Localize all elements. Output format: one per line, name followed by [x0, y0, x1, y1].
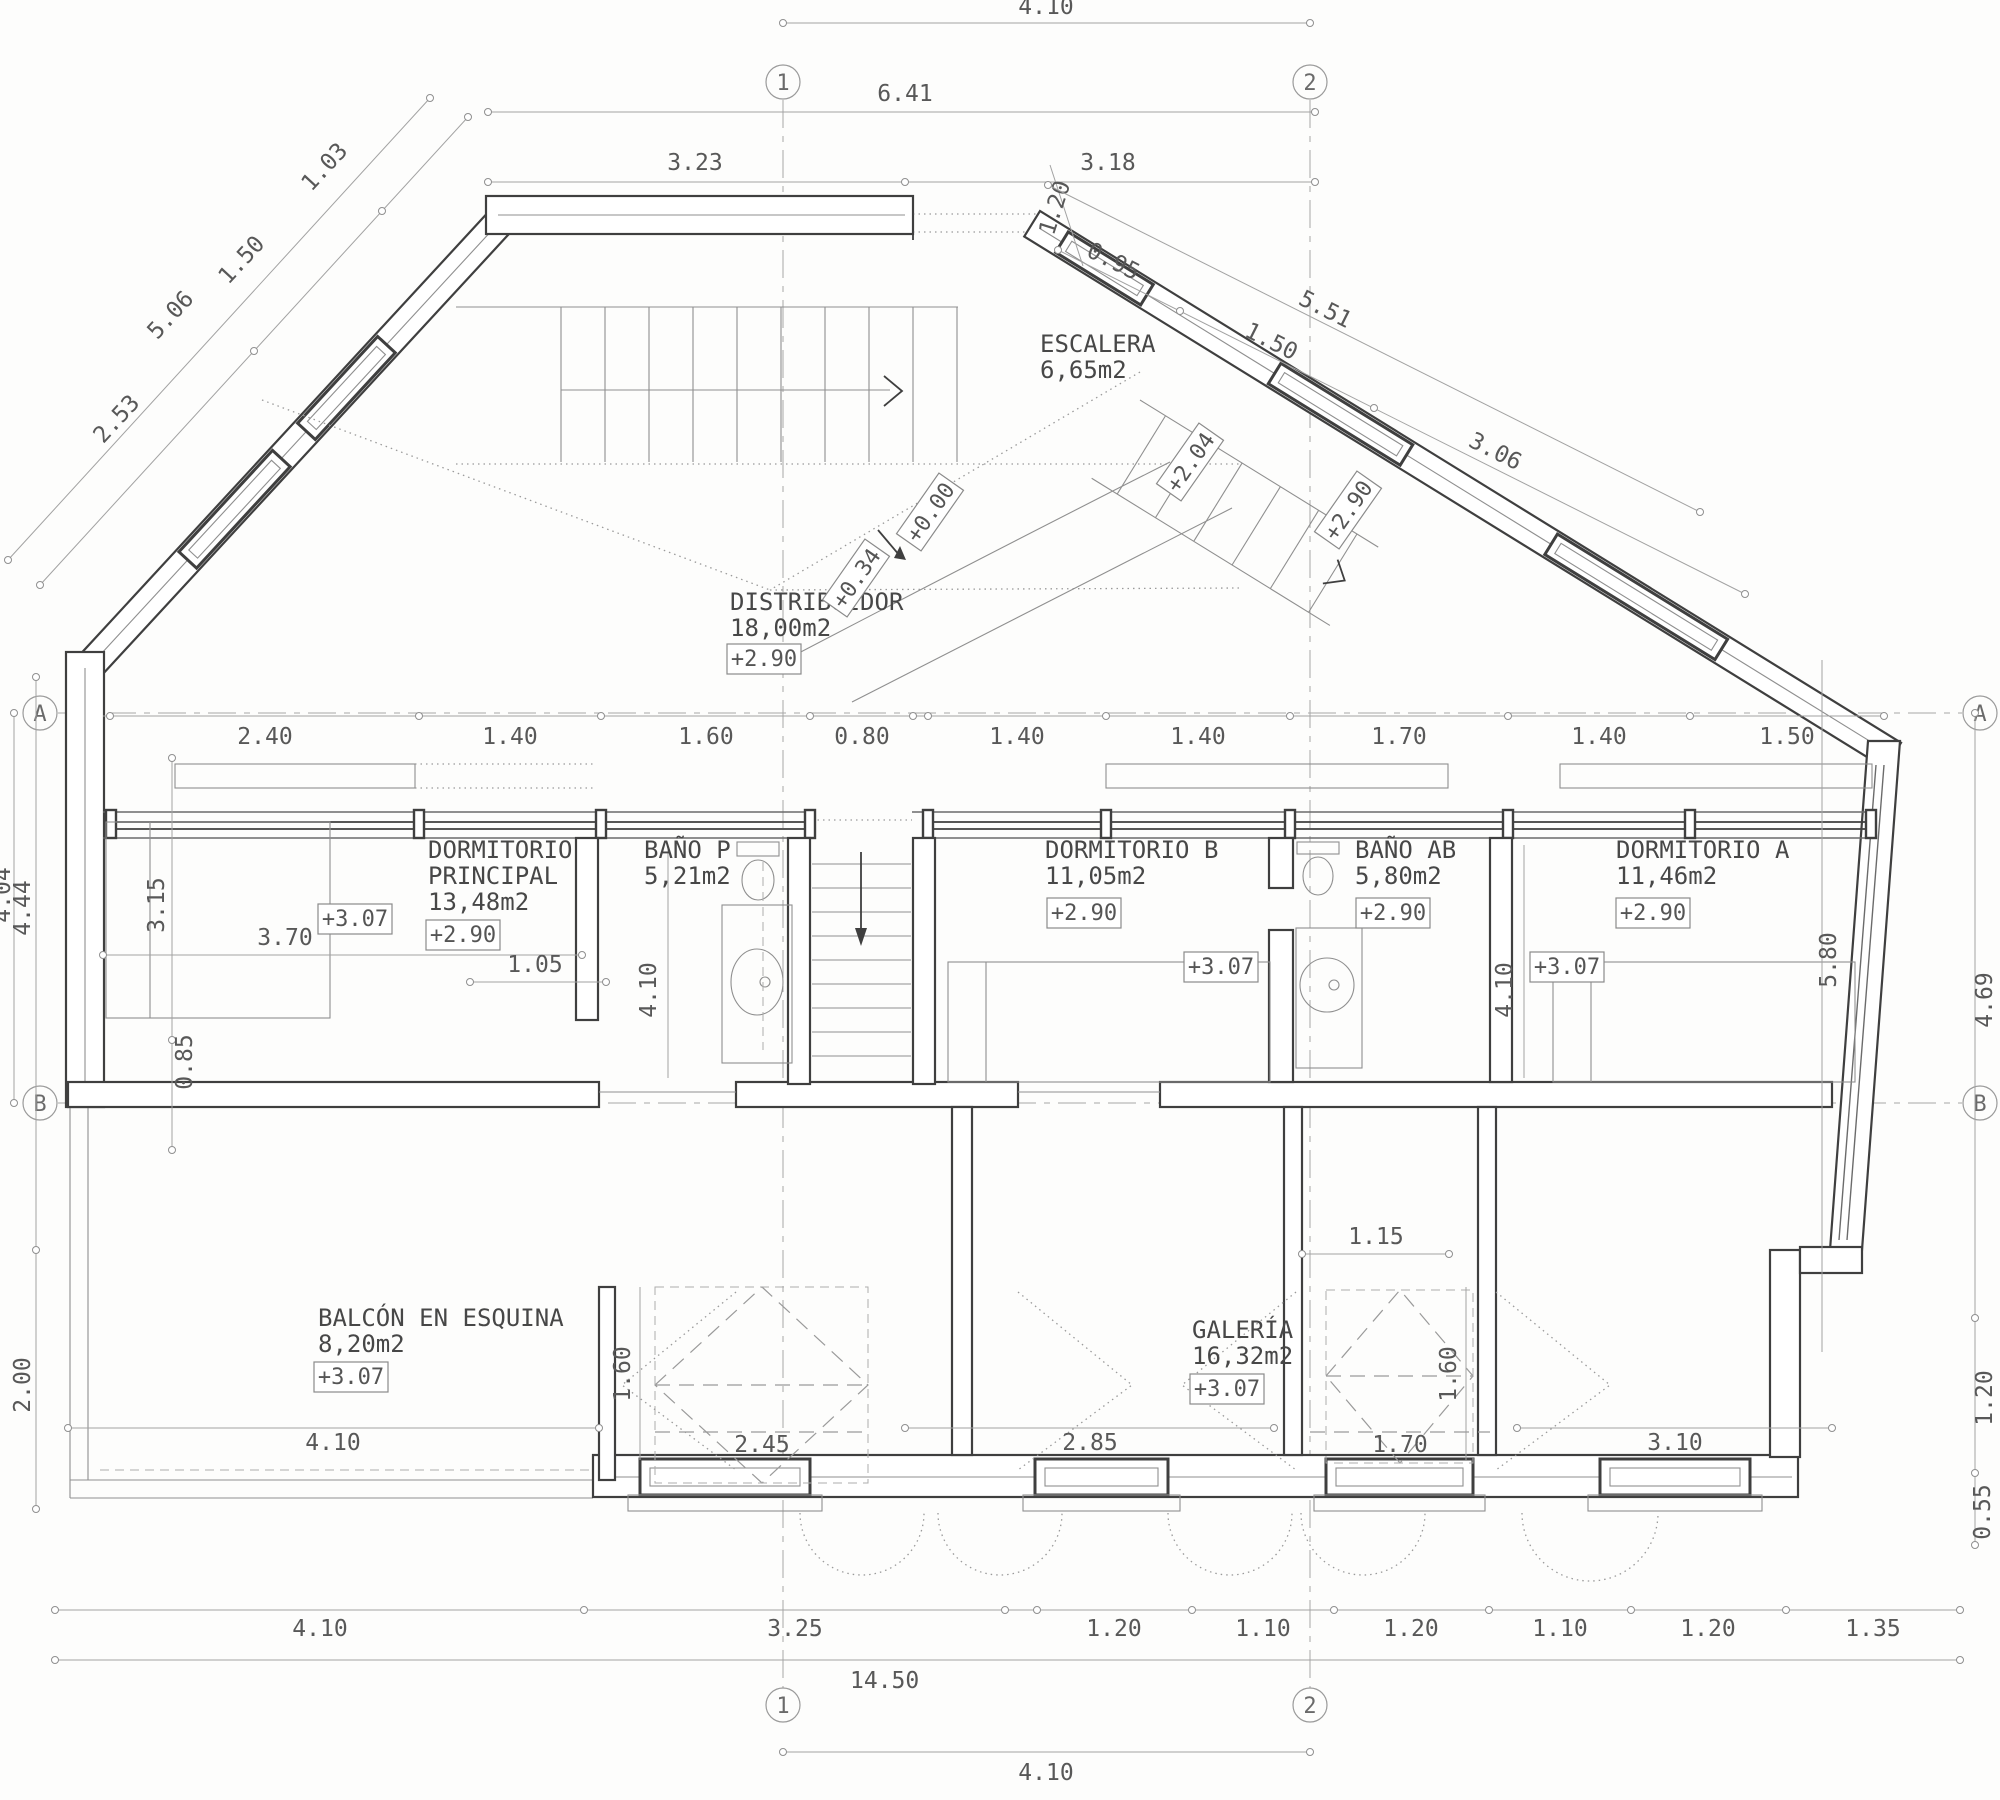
- wall-south-3: [1160, 1082, 1832, 1107]
- dim-rowA-8: 1.50: [1759, 724, 1814, 750]
- level-box-dorm-b: +2.90: [1047, 898, 1121, 928]
- wall-south-2: [736, 1082, 1018, 1107]
- window-bottom-3: [1326, 1459, 1473, 1495]
- label-distribuidor-area: 18,00m2: [730, 614, 831, 642]
- toilet-tank-banoab: [1297, 842, 1339, 854]
- dim-dorma-east: 5.80: [1816, 932, 1842, 987]
- shelf-dorm-a: [1560, 764, 1872, 788]
- counter-banoab: [1296, 928, 1362, 1068]
- dim-rowA-4: 1.40: [989, 724, 1044, 750]
- column-gallery-2: [1284, 1107, 1302, 1455]
- window-bottom-2: [1035, 1459, 1168, 1495]
- dimensions: 4.10 6.41 3.23 3.18 5.06 2.53 1.50 1.03 …: [0, 0, 1998, 1786]
- shelf-principal: [175, 764, 415, 788]
- dim-bot-6: 1.20: [1680, 1616, 1735, 1642]
- dim-diag-left-seg2: 1.50: [214, 231, 271, 289]
- window-diagonal-left-2: [298, 336, 396, 439]
- dim-banop-depth: 4.10: [636, 962, 662, 1017]
- label-distribuidor: DISTRIBUIDOR: [730, 588, 904, 616]
- level-box-dorm-principal: +2.90: [426, 920, 500, 950]
- dim-left-balcony: 2.00: [10, 1357, 36, 1412]
- label-escalera-area: 6,65m2: [1040, 356, 1127, 384]
- label-galeria: GALERÍA: [1192, 1315, 1294, 1344]
- dim-left-inner: 1.05: [507, 952, 562, 978]
- wall-banoab-east: [1490, 838, 1512, 1082]
- floor-level-box-dorm-b: +3.07: [1184, 952, 1258, 982]
- dim-int-1: 2.45: [734, 1432, 789, 1458]
- grid-label-B-left: B: [33, 1092, 46, 1117]
- label-dorm-a: DORMITORIO A: [1616, 836, 1790, 864]
- dim-bot-4: 1.20: [1383, 1616, 1438, 1642]
- dim-right-upper: 4.69: [1972, 972, 1998, 1027]
- wall-step-right: [1800, 1247, 1862, 1273]
- label-dorm-principal-1: DORMITORIO: [428, 836, 573, 864]
- svg-text:+3.07: +3.07: [322, 907, 388, 932]
- label-balcon-area: 8,20m2: [318, 1330, 405, 1358]
- level-box-bano-ab: +2.90: [1356, 898, 1430, 928]
- level-box-distribuidor: +2.90: [727, 644, 801, 674]
- svg-text:+3.07: +3.07: [1194, 1377, 1260, 1402]
- label-dorm-b: DORMITORIO B: [1045, 836, 1218, 864]
- stair-level-tags: +0.00 +0.34 +2.04 +2.90: [822, 423, 1381, 617]
- svg-text:+2.90: +2.90: [430, 923, 496, 948]
- dim-left-outer: 4.44: [10, 880, 36, 935]
- floor-level-box-principal: +3.07: [318, 904, 392, 934]
- dim-bot-3: 1.10: [1235, 1616, 1290, 1642]
- dim-rowA-2: 1.60: [678, 724, 733, 750]
- wall-top-left-diagonal: [75, 210, 512, 680]
- label-balcon: BALCÓN EN ESQUINA: [318, 1302, 564, 1332]
- grid-label-2-bottom: 2: [1303, 1694, 1316, 1719]
- dim-diag-right-total: 5.51: [1295, 286, 1356, 334]
- awning-arc: [800, 1513, 924, 1575]
- grid-label-1-top: 1: [776, 71, 789, 96]
- dim-bot-2: 1.20: [1086, 1616, 1141, 1642]
- grid-label-A-left: A: [33, 702, 46, 727]
- shelf-dorm-b: [1106, 764, 1448, 788]
- label-galeria-area: 16,32m2: [1192, 1342, 1293, 1370]
- label-dorm-a-area: 11,46m2: [1616, 862, 1717, 890]
- toilet-tank-banop: [737, 842, 779, 856]
- wall-stair-east: [913, 838, 935, 1084]
- dim-rowA-0: 2.40: [237, 724, 292, 750]
- dim-dorma-depth: 4.10: [1492, 962, 1518, 1017]
- stair-central: [812, 852, 911, 1056]
- wall-stair-west: [788, 838, 810, 1084]
- label-bano-p-area: 5,21m2: [644, 862, 731, 890]
- window-diagonal-left-1: [179, 450, 290, 568]
- label-bano-ab-area: 5,80m2: [1355, 862, 1442, 890]
- dim-top-total: 4.10: [1018, 0, 1073, 20]
- counter-banop: [722, 905, 792, 1063]
- dim-left-lower: 0.85: [172, 1034, 198, 1089]
- dim-top-upper: 6.41: [877, 81, 932, 107]
- svg-text:+2.90: +2.90: [1051, 901, 1117, 926]
- dim-diag-left-seg3: 1.03: [297, 138, 354, 196]
- toilet-banop: [742, 860, 774, 900]
- svg-text:+2.90: +2.90: [1620, 901, 1686, 926]
- level-box-entry: +0.00: [896, 473, 963, 551]
- toilet-banoab: [1303, 857, 1333, 895]
- column-gallery-1: [952, 1107, 972, 1455]
- level-box-mid: +2.04: [1156, 423, 1223, 501]
- dim-bot-5: 1.10: [1532, 1616, 1587, 1642]
- dim-galeria-inner: 1.15: [1348, 1224, 1403, 1250]
- sink-banoab: [1300, 958, 1354, 1012]
- wall-banop-west: [576, 838, 598, 1020]
- dim-int-4: 3.10: [1647, 1430, 1702, 1456]
- dim-right-step: 0.55: [1970, 1484, 1996, 1539]
- floor-plan: 1 2 1 2 A B A B: [0, 0, 2000, 1800]
- wall-banoab-west: [1269, 930, 1293, 1082]
- dim-right-lower: 1.20: [1972, 1370, 1998, 1425]
- dim-rowA-6: 1.70: [1371, 724, 1426, 750]
- stair-down-arrow: [855, 928, 867, 946]
- dim-int-0: 4.10: [305, 1430, 360, 1456]
- svg-text:+2.90: +2.90: [1360, 901, 1426, 926]
- dim-top-right: 3.18: [1080, 150, 1135, 176]
- dim-top-left: 3.23: [667, 150, 722, 176]
- dim-bottom-grid: 4.10: [1018, 1760, 1073, 1786]
- dim-int-3: 1.70: [1372, 1432, 1427, 1458]
- dim-balcon-height: 1.60: [610, 1346, 636, 1401]
- level-box-galeria: +3.07: [1190, 1374, 1264, 1404]
- bed-principal: [106, 822, 330, 1018]
- window-diagonal-right-3: [1545, 534, 1728, 660]
- dim-rowA-3: 0.80: [834, 724, 889, 750]
- floor-level-box-dorm-a: +3.07: [1530, 952, 1604, 982]
- label-dorm-principal-area: 13,48m2: [428, 888, 529, 916]
- svg-text:+3.07: +3.07: [1188, 955, 1254, 980]
- window-diagonal-right-2: [1268, 363, 1412, 465]
- dim-rowA-1: 1.40: [482, 724, 537, 750]
- svg-text:+2.90: +2.90: [731, 647, 797, 672]
- dim-left-room: 3.15: [144, 877, 170, 932]
- wall-banoab-west-upper: [1269, 838, 1293, 888]
- svg-text:+3.07: +3.07: [1534, 955, 1600, 980]
- dim-left-bed: 3.70: [257, 925, 312, 951]
- dim-diag-left-total: 5.06: [143, 286, 200, 344]
- dim-galeria-height: 1.60: [1436, 1346, 1462, 1401]
- dim-bot-7: 1.35: [1845, 1616, 1900, 1642]
- room-labels: ESCALERA 6,65m2 DISTRIBUIDOR 18,00m2 +2.…: [314, 330, 1790, 1404]
- wall-gallery-east: [1770, 1250, 1800, 1457]
- label-escalera: ESCALERA: [1040, 330, 1156, 358]
- window-bottom-1: [640, 1459, 810, 1495]
- wall-top-right-diagonal: [1024, 211, 1901, 768]
- level-box-balcon: +3.07: [314, 1362, 388, 1392]
- level-box-dorm-a: +2.90: [1616, 898, 1690, 928]
- label-bano-p: BAÑO P: [644, 834, 731, 864]
- door-swing-4: [1496, 1292, 1610, 1470]
- stair-direction-arrow: [884, 376, 902, 406]
- dim-bot-1: 3.25: [767, 1616, 822, 1642]
- level-box-upper: +2.90: [1314, 471, 1381, 549]
- svg-text:+3.07: +3.07: [318, 1365, 384, 1390]
- distribuidor-boundary-left: [262, 400, 770, 590]
- window-bottom-4: [1600, 1459, 1750, 1495]
- dim-rowA-5: 1.40: [1170, 724, 1225, 750]
- dim-int-2: 2.85: [1062, 1430, 1117, 1456]
- dim-rowA-7: 1.40: [1571, 724, 1626, 750]
- dim-total-width: 14.50: [850, 1668, 919, 1694]
- window-posts: [106, 810, 1876, 838]
- wall-south-1: [68, 1082, 599, 1107]
- label-dorm-b-area: 11,05m2: [1045, 862, 1146, 890]
- label-bano-ab: BAÑO AB: [1355, 834, 1456, 864]
- label-dorm-principal-2: PRINCIPAL: [428, 862, 558, 890]
- column-gallery-3: [1478, 1107, 1496, 1455]
- dim-bot-0: 4.10: [292, 1616, 347, 1642]
- grid-label-1-bottom: 1: [776, 1694, 789, 1719]
- sink-banop: [731, 949, 783, 1015]
- grid-label-2-top: 2: [1303, 71, 1316, 96]
